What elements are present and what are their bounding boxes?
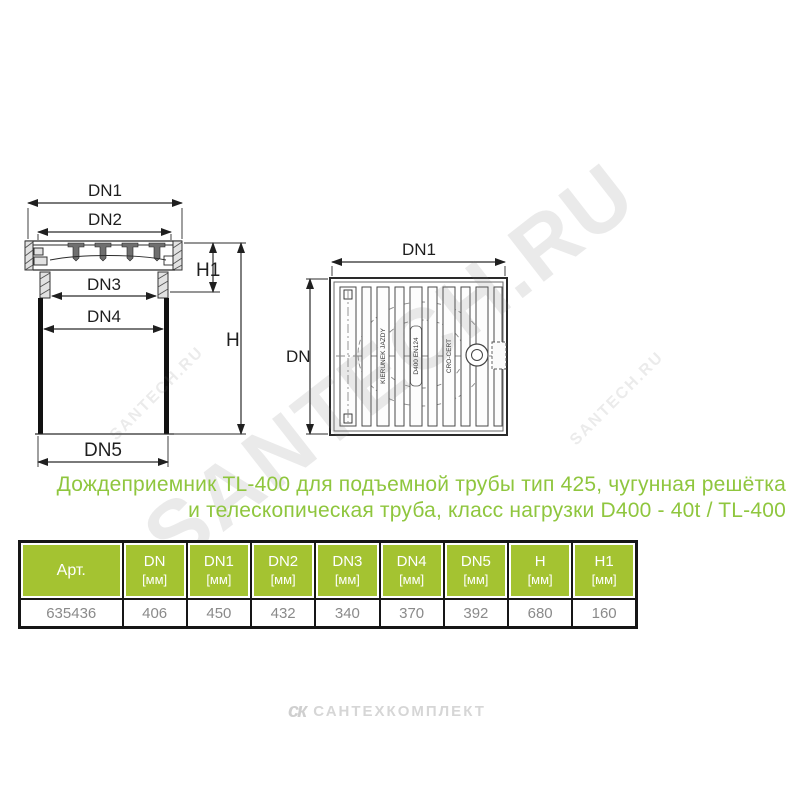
cell-h: 680: [508, 599, 572, 628]
dim-dn4: DN4: [44, 307, 163, 329]
col-header-h1: H1 [мм]: [572, 542, 636, 600]
col-header-dn5: DN5 [мм]: [444, 542, 508, 600]
cell-h1: 160: [572, 599, 636, 628]
grate-marking-cert: CRO-CERT: [446, 339, 453, 373]
cell-dn1: 450: [187, 599, 251, 628]
watermark-small-right: SANTECH.RU: [567, 348, 668, 449]
cell-art: 635436: [20, 599, 123, 628]
dim-top-dn1: DN1: [332, 240, 505, 276]
sk-logo-icon: ск: [288, 700, 305, 723]
table-row: 635436 406 450 432 340 370 392 680 160: [20, 599, 637, 628]
grate-top-body: KIERUNEK JAZDY D400 EN124 CRO-CERT: [330, 278, 507, 435]
product-image-canvas: DN1 DN2: [0, 0, 800, 800]
col-header-dn4: DN4 [мм]: [380, 542, 444, 600]
dim-label-top-dn: DN: [286, 347, 311, 366]
cell-dn: 406: [123, 599, 187, 628]
side-view-drawing: DN1 DN2: [0, 170, 270, 470]
dim-label-top-dn1: DN1: [402, 240, 436, 259]
col-header-dn2: DN2 [мм]: [251, 542, 315, 600]
col-header-dn: DN [мм]: [123, 542, 187, 600]
product-title-line2: и телескопическая труба, класс нагрузки …: [0, 498, 786, 524]
cell-dn2: 432: [251, 599, 315, 628]
dim-label-dn5: DN5: [84, 440, 122, 461]
col-header-dn3: DN3 [мм]: [315, 542, 379, 600]
sk-logo-text: САНТЕХКОМПЛЕКТ: [313, 703, 486, 720]
dimensions-table: Арт. DN [мм] DN1 [мм] DN2 [мм] DN3 [м: [18, 540, 638, 629]
dim-label-dn1: DN1: [88, 181, 122, 200]
product-title: Дождеприемник TL-400 для подъемной трубы…: [0, 472, 786, 524]
dim-dn5: DN5: [38, 436, 168, 467]
top-view-drawing: DN1 DN: [280, 240, 560, 450]
dim-label-dn3: DN3: [87, 275, 121, 294]
grate-marking-direction: KIERUNEK JAZDY: [380, 328, 387, 384]
dim-top-dn: DN: [286, 279, 328, 434]
santehkomplekt-logo: ск САНТЕХКОМПЛЕКТ: [288, 700, 486, 722]
cell-dn5: 392: [444, 599, 508, 628]
cell-dn4: 370: [380, 599, 444, 628]
dim-dn3: DN3: [52, 275, 156, 296]
lock-flange: [492, 342, 506, 369]
dim-label-h: H: [226, 330, 240, 351]
col-header-art: Арт.: [20, 542, 123, 600]
cell-dn3: 340: [315, 599, 379, 628]
col-header-h: H [мм]: [508, 542, 572, 600]
dim-dn2: DN2: [38, 210, 171, 240]
lock-knob: [466, 344, 488, 366]
grate-frame-section: [25, 241, 182, 270]
dim-label-dn2: DN2: [88, 210, 122, 229]
grate-marking-load-class: D400 EN124: [413, 337, 420, 375]
table-header-row: Арт. DN [мм] DN1 [мм] DN2 [мм] DN3 [м: [20, 542, 637, 600]
dim-label-dn4: DN4: [87, 307, 121, 326]
col-header-dn1: DN1 [мм]: [187, 542, 251, 600]
product-title-line1: Дождеприемник TL-400 для подъемной трубы…: [0, 472, 786, 498]
dim-label-h1: H1: [196, 260, 220, 281]
